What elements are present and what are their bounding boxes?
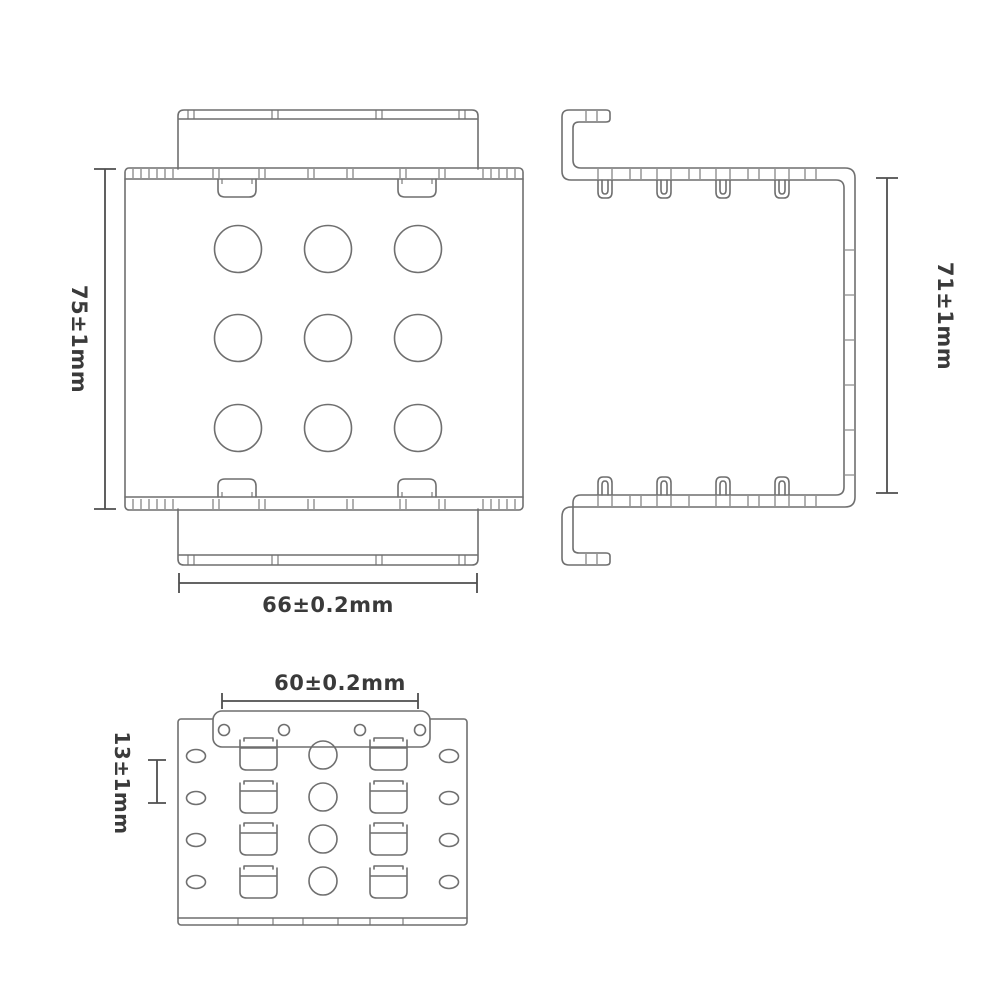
front-height-dim-label: 75±1mm xyxy=(67,285,91,393)
bottom-clips-right-column xyxy=(370,738,407,898)
side-top-arm-tabs xyxy=(598,180,789,198)
side-bottom-arm-tabs xyxy=(598,477,789,495)
front-bottom-flange xyxy=(178,509,478,565)
front-view xyxy=(125,110,523,565)
side-channel-outline xyxy=(562,110,855,565)
bottom-view xyxy=(178,711,467,925)
side-height-dim-line xyxy=(876,178,898,493)
bottom-center-holes xyxy=(309,741,337,895)
front-width-dim-label: 66±0.2mm xyxy=(262,593,394,617)
bottom-view-hatch-ticks xyxy=(238,918,403,925)
front-vent-holes xyxy=(215,226,442,452)
front-view-dimension-lines xyxy=(94,169,477,593)
bottom-clips-left-column xyxy=(240,738,277,898)
technical-drawing-page: 75±1mm 66±0.2mm 71±1mm xyxy=(0,0,1001,1001)
bracket-three-view-drawing: 75±1mm 66±0.2mm 71±1mm xyxy=(0,0,1001,1001)
side-view xyxy=(562,110,855,565)
bottom-row-pitch-dim-label: 13±1mm xyxy=(110,731,134,834)
side-view-dimension-lines xyxy=(876,178,898,493)
bottom-row-pitch-dim-line xyxy=(148,760,166,803)
front-width-dim-line xyxy=(179,573,477,593)
front-body-outline xyxy=(125,168,523,510)
front-height-dim-line xyxy=(94,169,116,509)
front-top-notches xyxy=(218,179,436,197)
bottom-hole-span-dim-label: 60±0.2mm xyxy=(274,671,406,695)
bottom-plate-outline xyxy=(178,719,467,925)
side-view-dimension-labels: 71±1mm xyxy=(933,262,957,370)
side-height-dim-label: 71±1mm xyxy=(933,262,957,370)
front-bottom-notches xyxy=(218,479,436,497)
side-view-hatch-ticks xyxy=(586,111,854,564)
bottom-view-dimension-labels: 60±0.2mm 13±1mm xyxy=(110,671,406,835)
bottom-hole-span-dim-line xyxy=(222,693,418,709)
